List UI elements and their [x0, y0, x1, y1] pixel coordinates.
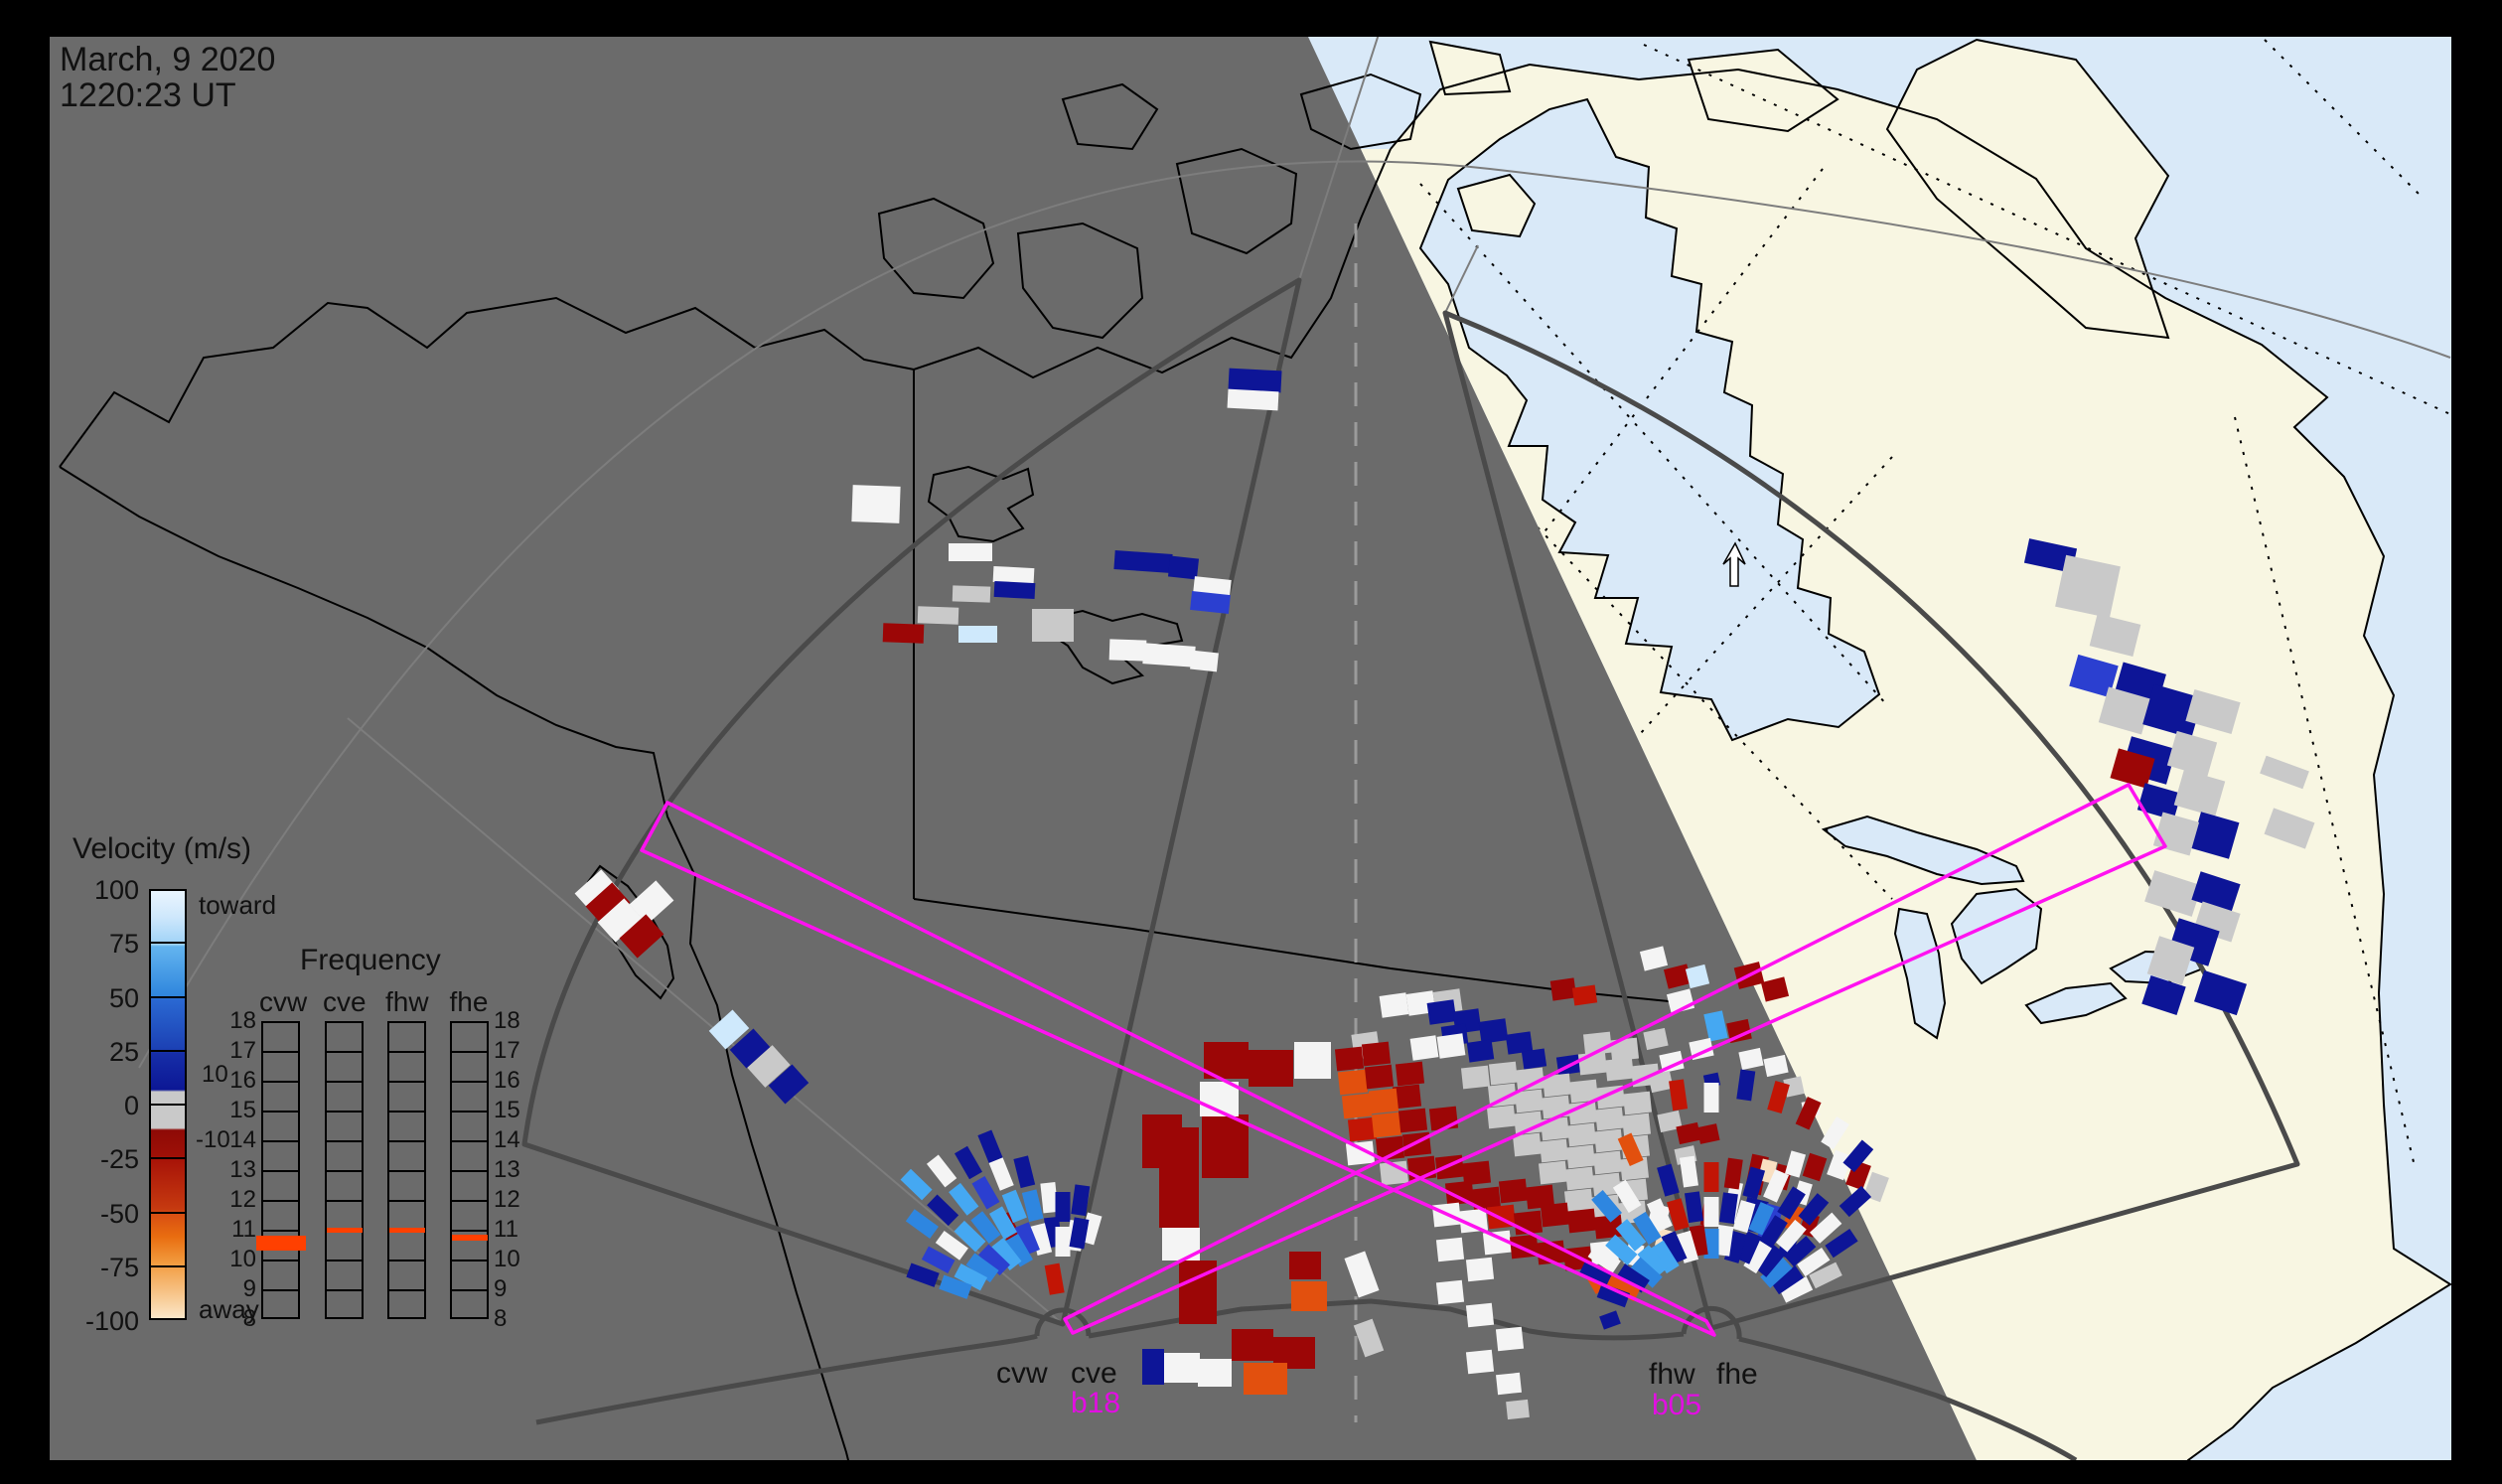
- data-cell: [953, 585, 991, 602]
- data-cell: [1466, 1258, 1494, 1282]
- data-cell: [949, 543, 992, 561]
- colorbar-tick-line: [149, 1157, 187, 1159]
- frequency-scale-label: 12: [205, 1186, 256, 1214]
- data-cell: [1289, 1252, 1321, 1279]
- frequency-scale-label: 10: [494, 1246, 545, 1273]
- frequency-scale-label: 18: [494, 1007, 545, 1035]
- data-cell: [1335, 1047, 1364, 1072]
- fan-cell: [1704, 1083, 1719, 1113]
- data-cell: [1437, 1033, 1466, 1058]
- velocity-tick: -75: [50, 1253, 139, 1283]
- data-cell: [1467, 1039, 1495, 1062]
- data-cell: [1398, 1109, 1427, 1133]
- data-cell: [1605, 1058, 1634, 1082]
- colorbar-tick-line: [149, 1050, 187, 1052]
- data-cell: [1427, 999, 1457, 1025]
- frequency-scale-label: 11: [205, 1216, 256, 1244]
- data-cell: [1372, 1113, 1401, 1138]
- frequency-extra-label: 10: [202, 1061, 253, 1089]
- colorbar-tick-line: [149, 996, 187, 998]
- frequency-marker-cve: [327, 1228, 363, 1233]
- frequency-column-label-fhw: fhw: [385, 986, 427, 1018]
- frequency-scale-label: 14: [494, 1126, 545, 1154]
- frequency-scale-label: 10: [205, 1246, 256, 1273]
- data-cell: [1436, 1280, 1464, 1305]
- frequency-scale-label: 11: [494, 1216, 545, 1244]
- data-cell: [1487, 1106, 1516, 1129]
- frequency-scale-label: 18: [205, 1007, 256, 1035]
- radar-label-b05: b05: [1652, 1389, 1701, 1422]
- data-cell: [1159, 1195, 1199, 1228]
- radar-label-fhw: fhw: [1649, 1358, 1695, 1392]
- colorbar-tick-line: [149, 942, 187, 944]
- data-cell: [1541, 1117, 1569, 1141]
- frequency-scale-label: 8: [205, 1305, 256, 1333]
- frequency-scale-label: 16: [494, 1067, 545, 1095]
- data-cell: [1202, 1114, 1249, 1146]
- data-cell: [1294, 1042, 1331, 1079]
- frequency-column-label-fhe: fhe: [448, 986, 490, 1018]
- radar-label-cve: cve: [1071, 1357, 1117, 1391]
- data-cell: [883, 623, 925, 643]
- data-cell: [1142, 1349, 1164, 1385]
- colorbar-tick-line: [149, 1212, 187, 1214]
- data-cell: [1365, 1065, 1394, 1090]
- data-cell: [1499, 1179, 1528, 1204]
- data-cell: [1461, 1066, 1490, 1090]
- frequency-marker-fhw: [389, 1228, 425, 1233]
- data-cell: [1539, 1161, 1567, 1185]
- frequency-column-cve: [325, 1021, 364, 1319]
- frequency-scale-label: 9: [494, 1275, 545, 1303]
- frequency-scale-label: 15: [494, 1097, 545, 1124]
- frequency-column-fhw: [387, 1021, 426, 1319]
- frequency-marker-cvw: [256, 1236, 306, 1251]
- data-cell: [1198, 1359, 1232, 1387]
- data-cell: [1489, 1062, 1518, 1086]
- data-cell: [1109, 639, 1147, 661]
- data-cell: [1190, 591, 1231, 614]
- data-cell: [851, 485, 900, 523]
- data-cell: [1623, 1092, 1652, 1115]
- frequency-scale-label: 12: [494, 1186, 545, 1214]
- frequency-column-cvw: [261, 1021, 300, 1319]
- velocity-tick: 100: [50, 875, 139, 906]
- data-cell: [1369, 1089, 1398, 1114]
- data-cell: [1168, 556, 1199, 580]
- data-cell: [1506, 1400, 1530, 1419]
- time-label: 1220:23 UT: [60, 77, 236, 113]
- data-cell: [1466, 1350, 1494, 1375]
- frequency-column-label-cve: cve: [323, 986, 365, 1018]
- data-cell: [1113, 550, 1172, 573]
- data-cell: [918, 606, 959, 624]
- data-cell: [1232, 1329, 1273, 1361]
- fan-cell: [1704, 1197, 1719, 1227]
- data-cell: [1566, 1145, 1595, 1169]
- velocity-tick: -25: [50, 1144, 139, 1175]
- data-cell: [1142, 643, 1195, 668]
- data-cell: [1032, 609, 1074, 642]
- data-cell: [1244, 1363, 1287, 1395]
- velocity-tick: 0: [50, 1091, 139, 1121]
- data-cell: [1159, 1127, 1199, 1161]
- data-cell: [1567, 1123, 1596, 1147]
- radar-label-cvw: cvw: [996, 1357, 1048, 1391]
- data-cell: [1542, 1096, 1570, 1119]
- frequency-scale-label: 13: [205, 1156, 256, 1184]
- fan-cell: [1704, 1162, 1719, 1192]
- velocity-tick: 75: [50, 929, 139, 960]
- data-cell: [1249, 1050, 1293, 1087]
- data-cell: [1396, 1062, 1424, 1087]
- data-cell: [1435, 1155, 1464, 1180]
- data-cell: [1190, 651, 1219, 672]
- data-cell: [1228, 369, 1281, 393]
- data-cell: [1541, 1203, 1569, 1228]
- frequency-scale-label: 17: [494, 1037, 545, 1065]
- velocity-legend-title: Velocity (m/s): [73, 832, 251, 866]
- data-cell: [1159, 1161, 1199, 1195]
- data-cell: [1496, 1373, 1522, 1395]
- data-cell: [1466, 1303, 1494, 1328]
- toward-label: toward: [199, 890, 276, 921]
- data-cell: [1564, 1189, 1593, 1213]
- data-cell: [1410, 1035, 1439, 1060]
- data-cell: [1622, 1113, 1651, 1137]
- frequency-scale-label: 13: [494, 1156, 545, 1184]
- data-cell: [1479, 1018, 1509, 1044]
- data-cell: [1164, 1353, 1200, 1383]
- data-cell: [1567, 1209, 1596, 1234]
- data-cell: [1380, 992, 1409, 1018]
- data-cell: [1565, 1167, 1594, 1191]
- frequency-column-fhe: [450, 1021, 489, 1319]
- data-cell: [1436, 1238, 1464, 1262]
- data-cell: [1338, 1070, 1368, 1096]
- frequency-marker-fhe: [452, 1235, 488, 1241]
- frequency-panel-title: Frequency: [300, 944, 441, 977]
- velocity-tick: -100: [50, 1306, 139, 1337]
- data-cell: [1540, 1139, 1568, 1163]
- date-label: March, 9 2020: [60, 42, 275, 77]
- data-cell: [1522, 1048, 1546, 1069]
- data-cell: [1572, 984, 1597, 1005]
- map-svg: [0, 0, 2502, 1484]
- data-cell: [1179, 1292, 1217, 1324]
- frequency-extra-label: -10: [196, 1126, 247, 1154]
- data-cell: [1228, 389, 1279, 411]
- colorbar-tick-line: [149, 1265, 187, 1267]
- frequency-scale-label: 9: [205, 1275, 256, 1303]
- superdarn-map-screen: { "header": { "date": "March, 9 2020", "…: [0, 0, 2502, 1484]
- velocity-tick: 50: [50, 983, 139, 1014]
- frequency-scale-label: 8: [494, 1305, 545, 1333]
- velocity-tick: 25: [50, 1037, 139, 1068]
- fan-cell: [1056, 1192, 1071, 1222]
- velocity-tick: -50: [50, 1199, 139, 1230]
- data-cell: [1202, 1146, 1249, 1178]
- data-cell: [1496, 1327, 1524, 1352]
- data-cell: [958, 626, 997, 643]
- data-cell: [1595, 1108, 1624, 1131]
- data-cell: [1291, 1281, 1327, 1311]
- frequency-scale-label: 15: [205, 1097, 256, 1124]
- colorbar-tick-line: [149, 1104, 187, 1106]
- data-cell: [994, 581, 1036, 599]
- data-cell: [1593, 1151, 1622, 1175]
- data-cell: [1342, 1094, 1372, 1119]
- frequency-column-label-cvw: cvw: [259, 986, 301, 1018]
- radar-label-b18: b18: [1071, 1387, 1120, 1420]
- radar-label-fhe: fhe: [1716, 1358, 1758, 1392]
- data-cell: [1362, 1042, 1391, 1067]
